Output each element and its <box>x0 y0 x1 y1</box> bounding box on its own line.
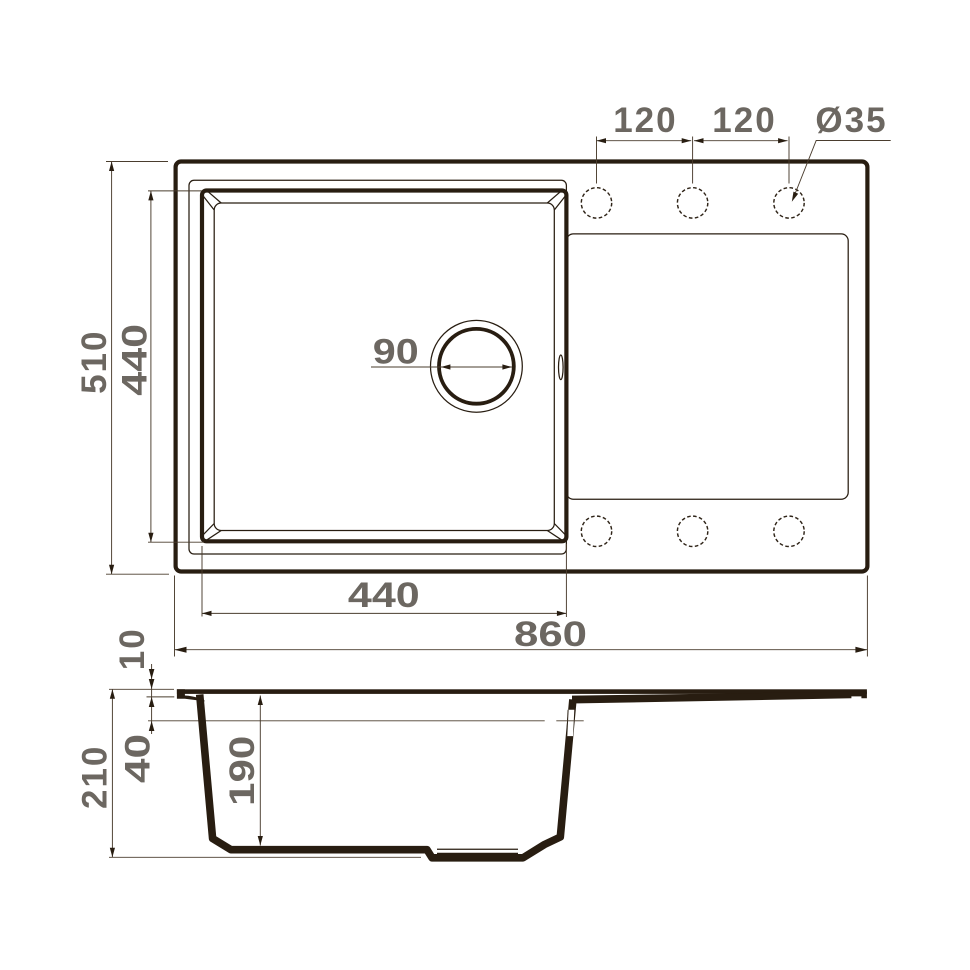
svg-text:440: 440 <box>348 576 420 615</box>
svg-text:Ø35: Ø35 <box>815 101 887 140</box>
svg-text:860: 860 <box>514 615 587 654</box>
svg-text:120: 120 <box>613 101 677 140</box>
svg-text:120: 120 <box>712 101 776 140</box>
svg-text:510: 510 <box>75 329 114 393</box>
svg-text:40: 40 <box>119 734 158 783</box>
svg-text:90: 90 <box>373 332 419 371</box>
svg-text:440: 440 <box>115 324 154 396</box>
svg-text:10: 10 <box>113 627 152 670</box>
svg-text:190: 190 <box>223 736 262 806</box>
svg-text:210: 210 <box>76 745 115 809</box>
